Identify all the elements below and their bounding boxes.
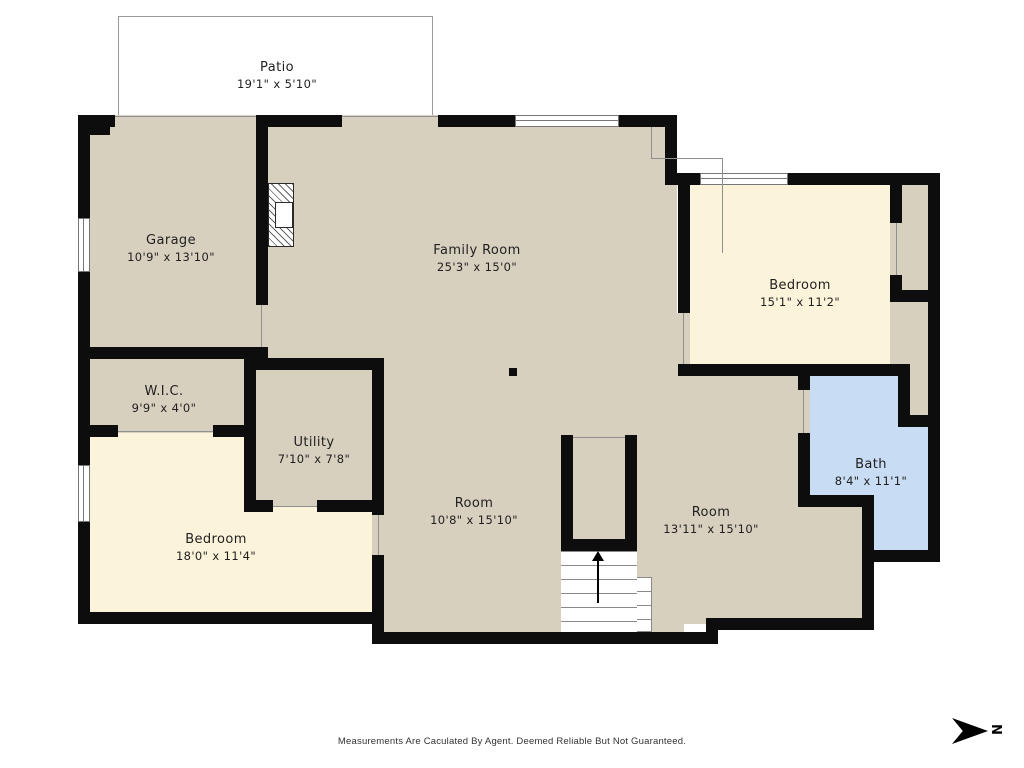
wall bbox=[678, 185, 690, 313]
window bbox=[700, 173, 788, 185]
room-name: Utility bbox=[278, 435, 350, 450]
room-dims: 25'3" x 15'0" bbox=[433, 260, 520, 274]
wall bbox=[78, 127, 110, 135]
wall bbox=[890, 185, 902, 223]
room-dims: 10'8" x 15'10" bbox=[430, 513, 518, 527]
wall bbox=[78, 115, 90, 624]
room-dims: 7'10" x 7'8" bbox=[278, 452, 350, 466]
room-dims: 18'0" x 11'4" bbox=[176, 549, 256, 563]
wall bbox=[244, 500, 273, 512]
room-name: Garage bbox=[127, 233, 215, 248]
room-name: Family Room bbox=[433, 243, 520, 258]
window bbox=[78, 465, 90, 522]
wall bbox=[561, 435, 573, 551]
stair-landing bbox=[637, 577, 652, 632]
wall bbox=[678, 364, 910, 376]
room-dims: 9'9" x 4'0" bbox=[132, 401, 197, 415]
wall bbox=[798, 376, 810, 390]
wall bbox=[256, 115, 268, 305]
opening-line bbox=[342, 116, 438, 117]
step-line bbox=[651, 127, 652, 158]
bedroom-left-label: Bedroom 18'0" x 11'4" bbox=[176, 532, 256, 563]
bedroom-right-area bbox=[690, 185, 890, 366]
room-name: Room bbox=[430, 496, 518, 511]
wall bbox=[561, 539, 637, 551]
wall bbox=[898, 415, 940, 427]
bath-label: Bath 8'4" x 11'1" bbox=[835, 457, 907, 488]
wall bbox=[78, 612, 384, 624]
room-name: Bedroom bbox=[760, 278, 840, 293]
step-line bbox=[651, 158, 723, 159]
wall bbox=[665, 115, 677, 185]
room-dims: 8'4" x 11'1" bbox=[835, 474, 907, 488]
wall bbox=[928, 173, 940, 562]
wall bbox=[677, 173, 700, 185]
opening-line bbox=[803, 390, 804, 433]
wall bbox=[862, 550, 940, 562]
wall bbox=[260, 115, 342, 127]
wall bbox=[78, 347, 268, 359]
room-dims: 15'1" x 11'2" bbox=[760, 295, 840, 309]
room-dims: 13'11" x 15'10" bbox=[663, 522, 759, 536]
fireplace-inner bbox=[275, 202, 293, 228]
wall bbox=[372, 555, 384, 612]
wall bbox=[372, 358, 384, 515]
garage-label: Garage 10'9" x 13'10" bbox=[127, 233, 215, 264]
bath-alcove-area bbox=[910, 376, 928, 415]
wall bbox=[890, 290, 940, 302]
opening-line bbox=[261, 305, 262, 347]
opening-line bbox=[378, 515, 379, 555]
column-post bbox=[509, 368, 517, 376]
wall bbox=[862, 495, 874, 630]
room-dims: 19'1" x 5'10" bbox=[237, 77, 317, 91]
disclaimer-text: Measurements Are Caculated By Agent. Dee… bbox=[0, 736, 1024, 747]
room-dims: 10'9" x 13'10" bbox=[127, 250, 215, 264]
opening-line bbox=[115, 116, 260, 117]
bedroom-right-label: Bedroom 15'1" x 11'2" bbox=[760, 278, 840, 309]
room-name: Bedroom bbox=[176, 532, 256, 547]
opening-line bbox=[683, 313, 684, 364]
wic-label: W.I.C. 9'9" x 4'0" bbox=[132, 384, 197, 415]
opening-line bbox=[118, 431, 213, 432]
wall bbox=[788, 173, 940, 185]
bath-area bbox=[874, 507, 928, 550]
window bbox=[515, 115, 619, 127]
wall bbox=[625, 435, 637, 551]
north-letter: N bbox=[988, 724, 1003, 735]
stair-direction-arrow bbox=[597, 560, 599, 603]
wall bbox=[706, 618, 874, 630]
room-name: W.I.C. bbox=[132, 384, 197, 399]
opening-line bbox=[896, 223, 897, 275]
room-name: Patio bbox=[237, 60, 317, 75]
stair-arrow-head bbox=[592, 551, 604, 561]
room-right-label: Room 13'11" x 15'10" bbox=[663, 505, 759, 536]
family-room-label: Family Room 25'3" x 15'0" bbox=[433, 243, 520, 274]
window bbox=[78, 218, 90, 272]
patio-label: Patio 19'1" x 5'10" bbox=[237, 60, 317, 91]
utility-label: Utility 7'10" x 7'8" bbox=[278, 435, 350, 466]
bath-area bbox=[810, 376, 898, 431]
room-name: Bath bbox=[835, 457, 907, 472]
wall bbox=[244, 359, 256, 512]
wall bbox=[372, 632, 718, 644]
opening-line bbox=[273, 506, 317, 507]
wall bbox=[798, 495, 874, 507]
wall bbox=[438, 115, 515, 127]
room-name: Room bbox=[663, 505, 759, 520]
wall bbox=[78, 425, 118, 437]
floor-plan: Patio 19'1" x 5'10" Garage 10'9" x 13'10… bbox=[0, 0, 1024, 768]
room-center-label: Room 10'8" x 15'10" bbox=[430, 496, 518, 527]
staircase bbox=[561, 551, 637, 632]
opening-line bbox=[573, 437, 625, 438]
wall bbox=[244, 358, 384, 370]
step-line bbox=[722, 158, 723, 253]
utility-area bbox=[250, 361, 384, 507]
